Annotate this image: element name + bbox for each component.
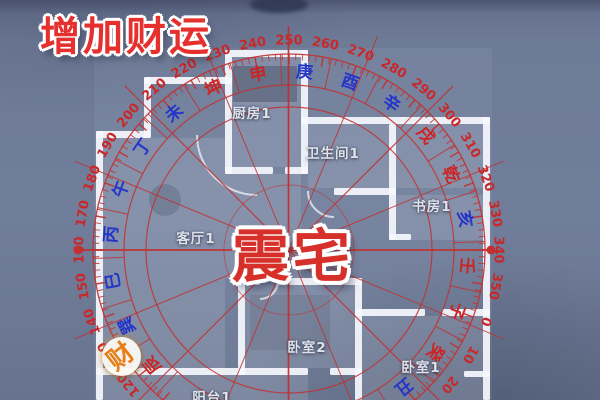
degree-label: 270: [345, 42, 376, 65]
room-label: 卧室2: [287, 336, 326, 356]
degree-label: 0: [477, 315, 494, 329]
degree-label: 170: [73, 199, 92, 228]
degree-label: 290: [408, 75, 438, 104]
degree-label: 210: [139, 75, 169, 104]
mountain-char: 庚: [295, 61, 314, 83]
degree-label: 10: [459, 343, 481, 366]
degree-label: 250: [275, 34, 302, 49]
page-title: 增加财运: [40, 4, 212, 62]
wealth-marker-glyph: 财: [103, 338, 140, 375]
degree-label: 300: [435, 100, 464, 130]
room-label: 阳台1: [192, 386, 231, 400]
degree-label: 350: [485, 272, 504, 301]
mountain-char: 巳: [102, 271, 125, 291]
mountain-char: 亥: [453, 209, 477, 229]
needle-dot-left: [74, 246, 83, 255]
degree-label: 260: [311, 34, 340, 53]
room-label: 卫生间1: [306, 142, 360, 162]
mountain-char: 丙: [101, 225, 122, 244]
room-label: 卧室1: [401, 356, 440, 376]
room-label: 书房1: [412, 195, 451, 215]
degree-label: 330: [485, 199, 504, 228]
degree-label: 200: [114, 100, 143, 130]
degree-label: 140: [81, 306, 104, 337]
mountain-char: 酉: [338, 70, 361, 95]
mountain-char: 午: [108, 177, 134, 200]
wealth-spot-marker: 财: [102, 337, 141, 376]
mountain-char: 坤: [201, 75, 225, 101]
degree-label: 240: [238, 34, 267, 53]
feng-shui-floorplan-screen: 0102012013014015016017018019020021022023…: [0, 0, 600, 400]
degree-label: 150: [73, 272, 92, 301]
room-label: 厨房1: [232, 102, 271, 122]
mountain-char: 巽: [115, 313, 140, 337]
room-label: 客厅1: [176, 227, 215, 247]
degree-label: 180: [81, 163, 104, 194]
degree-label: 20: [438, 373, 461, 397]
mountain-char: 子: [444, 299, 469, 322]
mountain-char: 申: [248, 62, 268, 86]
mountain-char: 乾: [438, 162, 464, 186]
degree-label: 320: [474, 163, 497, 194]
needle-dot-right: [487, 246, 496, 255]
mountain-char: 壬: [456, 256, 477, 275]
house-type-label: 震宅: [232, 211, 354, 293]
